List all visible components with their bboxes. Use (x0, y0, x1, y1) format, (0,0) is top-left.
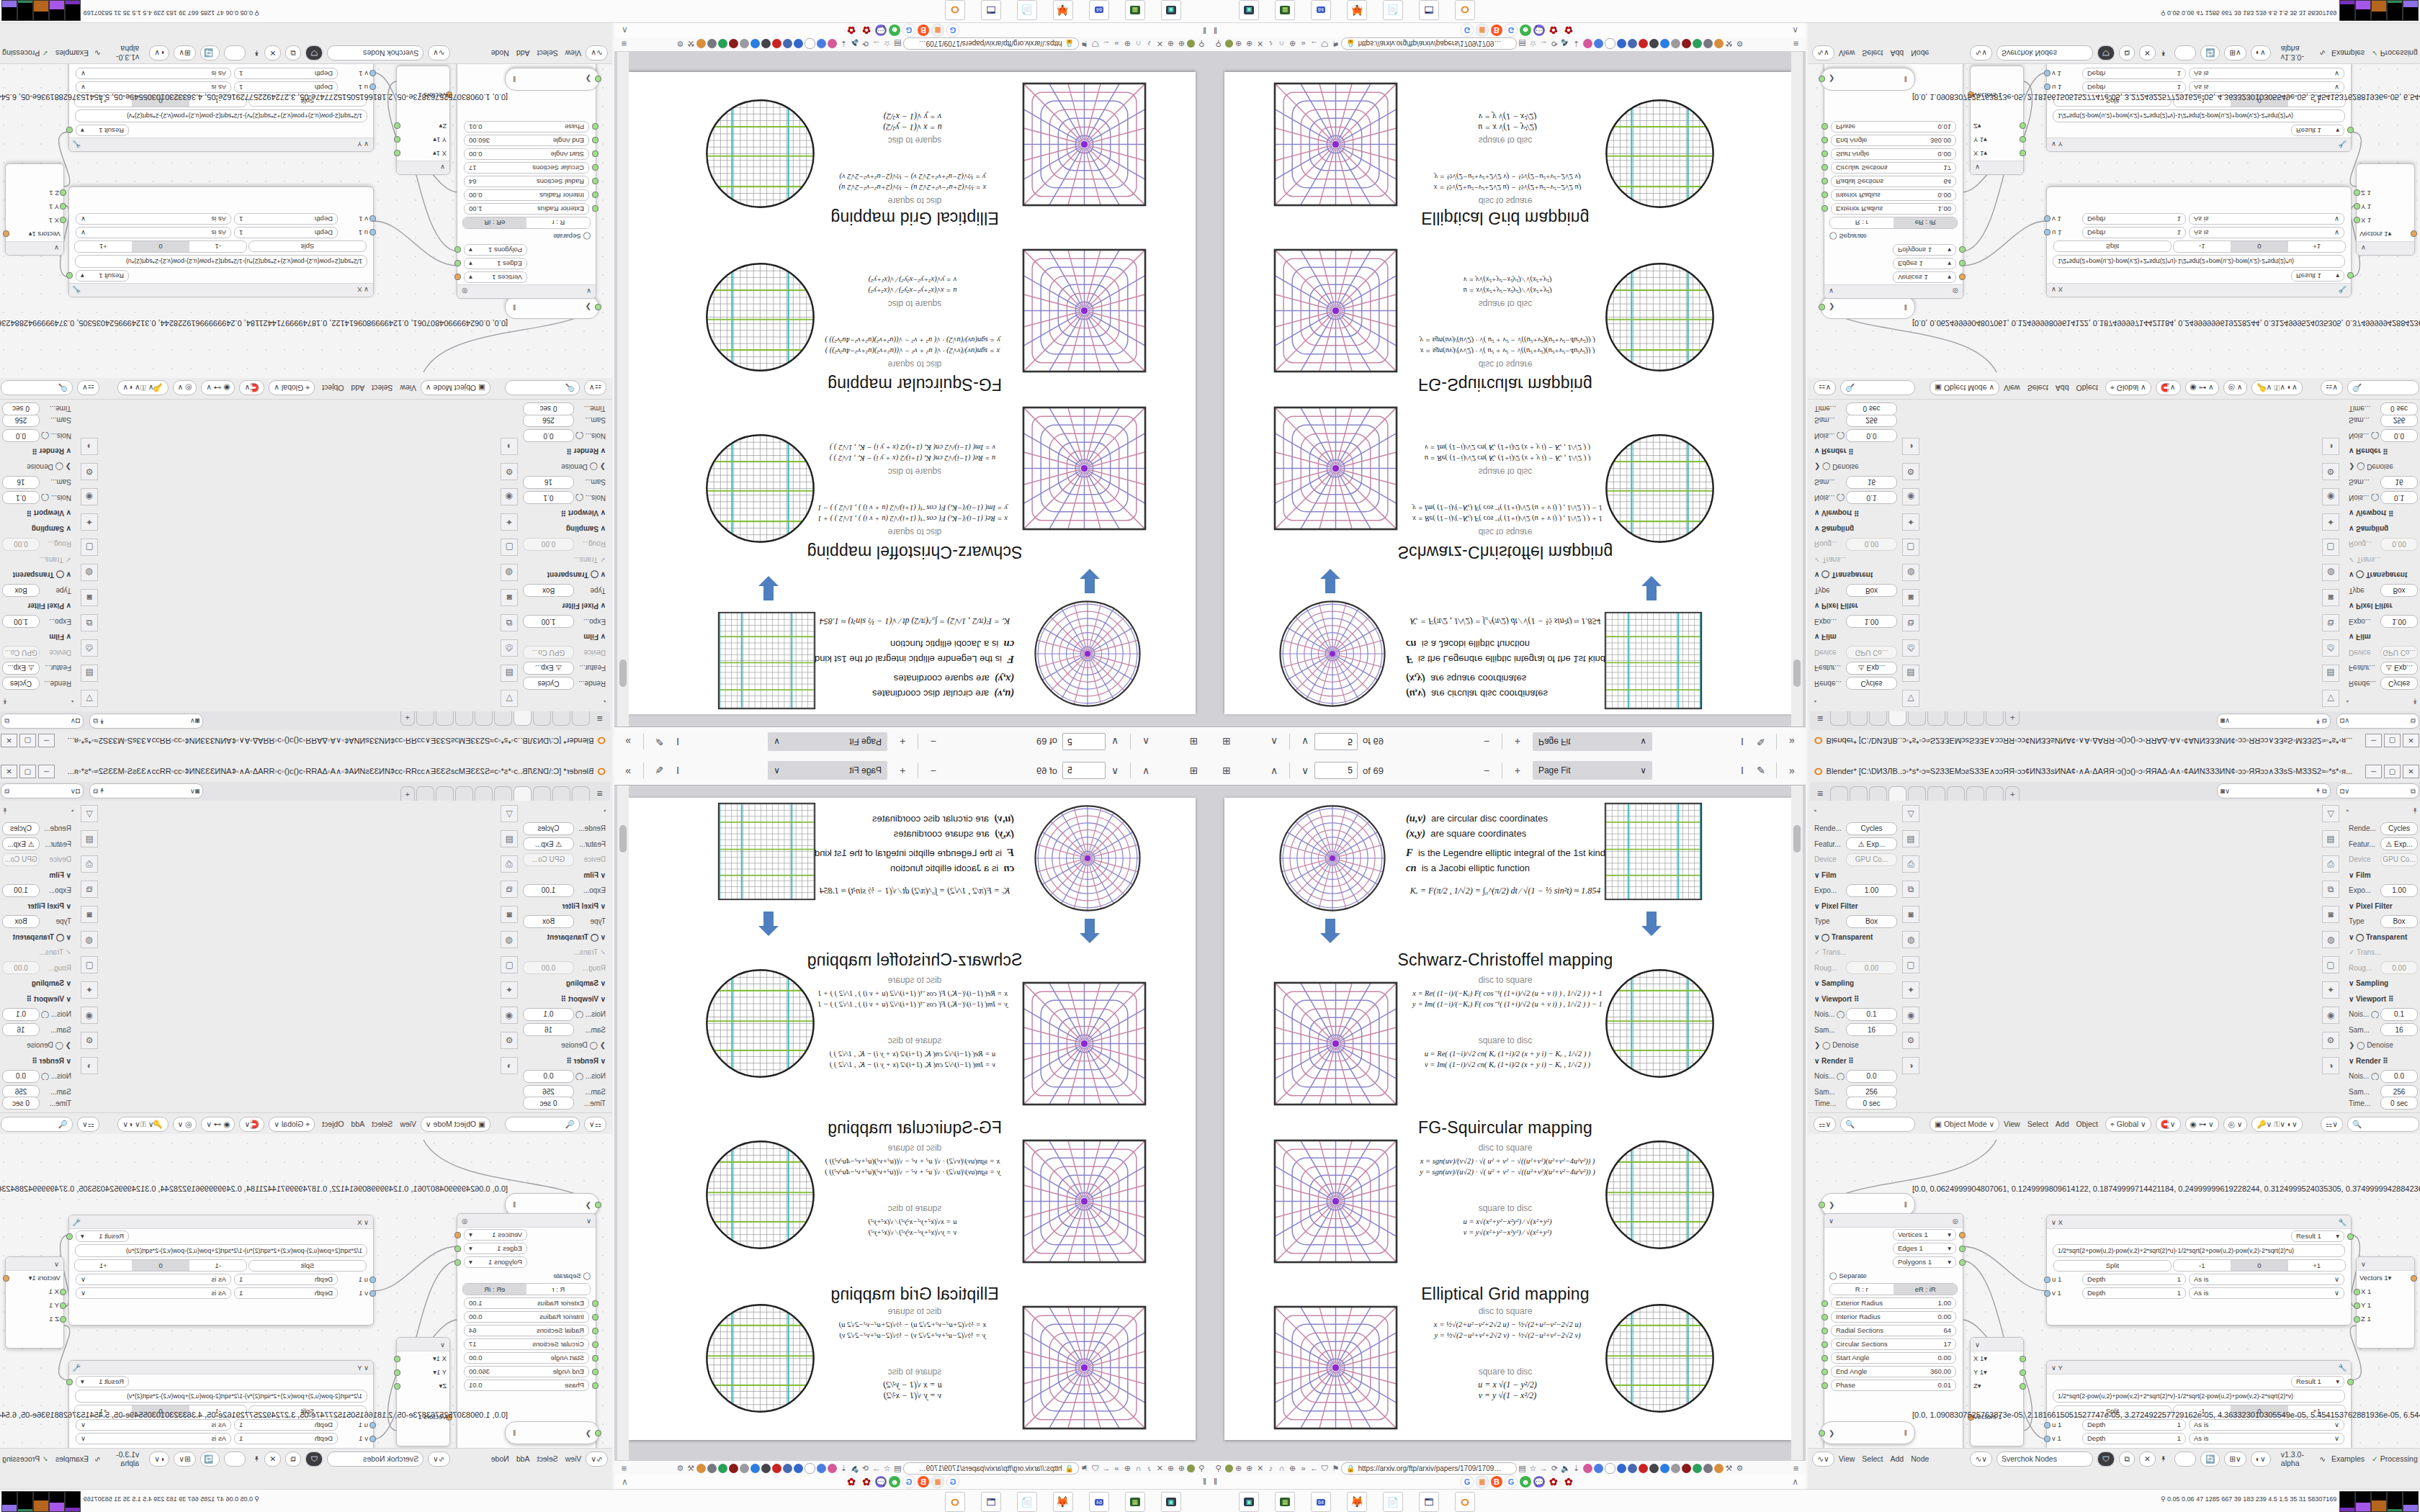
globe-icon[interactable]: ⊕ (1122, 40, 1133, 49)
stethoscope-node[interactable]: ❯‖ (505, 68, 599, 91)
socket[interactable] (2020, 1369, 2026, 1376)
forward-icon[interactable]: → (871, 40, 882, 48)
tree-type-icon[interactable]: ∿∨ (428, 46, 449, 61)
filter-funnel-icon[interactable]: ▽ (2322, 805, 2339, 822)
modifier-tab-icon[interactable]: ✦ (2322, 981, 2339, 999)
extension-icon[interactable] (1594, 40, 1603, 49)
section-header[interactable]: ∨ ◯ Transparent (2344, 930, 2420, 945)
app-menu-icon[interactable]: ≡ (1791, 39, 1801, 50)
circle-generator-node[interactable]: ∨◎ Vertices 1▾ Edges 1▾ Polygons 1▾ ◯ Se… (457, 54, 596, 299)
modifier-tab-icon[interactable]: ✦ (81, 981, 98, 999)
previous-page-icon[interactable]: ∧ (1265, 761, 1283, 780)
workspace-tab[interactable] (533, 711, 551, 726)
formula-input[interactable]: 1/2*sqrt(2-pow(u,2)+pow(v,2)+2*sqrt(2)*v… (2053, 109, 2345, 122)
field-circular-sections[interactable]: Circular Sections17 (1831, 1338, 1956, 1350)
input-socket[interactable] (592, 1314, 599, 1320)
menu-object[interactable]: Object (322, 384, 344, 392)
socket[interactable] (2020, 136, 2026, 143)
extension-icon[interactable] (772, 1464, 781, 1473)
node-tree-name[interactable]: Sverchok Nodes (327, 1452, 423, 1467)
collapse-icon[interactable]: ∨ (1829, 1217, 1834, 1225)
property-row[interactable]: Time...0 sec (2344, 401, 2420, 417)
output-tab-icon[interactable]: ⎙ (81, 639, 98, 657)
section-header[interactable]: ∨ Pixel Filter (1810, 899, 1901, 914)
section-header[interactable]: ∨ Pixel Filter (0, 899, 76, 914)
subsection-header[interactable]: ∨ Render ⠿ (519, 1053, 610, 1069)
output-socket[interactable] (1959, 1232, 1966, 1238)
overlays-toggle[interactable]: ◎ ∨ (2223, 1117, 2248, 1132)
editor-type-button[interactable]: ⚏∨ (1814, 1117, 1836, 1132)
previous-page-icon[interactable]: ∧ (1265, 732, 1283, 751)
depth-field[interactable]: Depth1 (234, 1419, 338, 1431)
workspace-tab[interactable] (552, 786, 570, 801)
circle-generator-node[interactable]: ∨◎ Vertices 1▾ Edges 1▾ Polygons 1▾ ◯ Se… (1824, 54, 1963, 299)
menu-object[interactable]: Object (2076, 384, 2098, 392)
workspace-tab[interactable] (436, 711, 454, 726)
workspace-tab[interactable] (572, 711, 590, 726)
taskbar-app-window[interactable]: 🗔 (1419, 0, 1439, 20)
scrollbar-thumb[interactable] (1793, 825, 1801, 852)
draw-tool-icon[interactable]: ✎ (650, 732, 668, 751)
modifier-tab-icon[interactable]: ✦ (501, 981, 518, 999)
property-row[interactable]: Roug...0.00 (0, 536, 76, 552)
stethoscope-node[interactable]: ❯‖ (505, 1421, 599, 1444)
world-tab-icon[interactable]: ◍ (1902, 564, 1919, 581)
extension-icon[interactable] (740, 40, 749, 49)
input-socket[interactable] (369, 70, 376, 76)
taskbar-app-notepad[interactable]: 📄 (1017, 1492, 1037, 1512)
extension-icon[interactable] (1703, 40, 1713, 49)
taskbar-app-blender[interactable]: ⵔ (1455, 1492, 1475, 1512)
output-vertices[interactable]: Vertices 1▾ (1893, 272, 1956, 284)
property-row[interactable]: ❯ ◯ Denoise (519, 459, 610, 475)
input-socket[interactable] (369, 229, 376, 235)
physics-tab-icon[interactable]: ◉ (81, 488, 98, 505)
zoom-select[interactable]: Page Fit∨ (768, 761, 887, 780)
search-input-right[interactable]: 🔍 (2347, 1117, 2419, 1132)
wrap-segment[interactable]: -10+1 (74, 1259, 247, 1272)
overflow-icon[interactable]: » (1298, 1464, 1309, 1472)
render-tab-icon[interactable]: ▤ (2322, 830, 2339, 847)
output-socket[interactable] (454, 274, 461, 280)
menu-select[interactable]: Select (372, 1120, 393, 1128)
workspace-tab[interactable] (1966, 786, 1984, 801)
refresh-icon[interactable]: 🔄 (200, 1452, 220, 1467)
pdf-scrollbar[interactable] (1791, 786, 1803, 1489)
globe-icon[interactable]: ⊕ (1176, 40, 1187, 49)
section-header[interactable]: ∨ Film (2344, 629, 2420, 645)
extension-icon[interactable] (750, 1464, 760, 1473)
collapse-icon[interactable]: ∨ (440, 164, 445, 172)
property-row[interactable]: Featur...⚠ Exp... (519, 837, 610, 852)
section-header[interactable]: ∨ ◯ Transparent (2344, 567, 2420, 583)
section-header[interactable]: ∨ ◯ Transparent (0, 930, 76, 945)
output-edges[interactable]: Edges 1▾ (464, 1243, 527, 1254)
output-socket[interactable] (66, 1379, 73, 1385)
input-socket[interactable] (592, 1355, 599, 1362)
pin-icon[interactable]: 🖈 (1, 806, 9, 815)
settings-gear-icon[interactable]: ⚙ (675, 1464, 686, 1473)
bookmark-flower-icon[interactable]: ✿ (1547, 1475, 1560, 1488)
socket[interactable] (394, 1383, 400, 1390)
blender-titlebar[interactable]: ⵔ Blender* [C:\DИЗЛВ..ɔ◦*ѕ*◦ɔ≈S2ЗЗEМɔƨЅЗ… (1810, 760, 2420, 782)
sidebar-toggle-icon[interactable]: ⊞ (1217, 732, 1236, 751)
extension-icon[interactable] (783, 1464, 792, 1473)
collapse-icon[interactable]: ∨ (2361, 1260, 2366, 1268)
field-phase[interactable]: Phase0.01 (464, 1380, 589, 1391)
input-socket[interactable] (2044, 70, 2051, 76)
section-header[interactable]: ∨ Sampling (519, 521, 610, 537)
output-socket[interactable] (66, 1233, 73, 1240)
tree-type-icon[interactable]: ∿∨ (1970, 1452, 1991, 1467)
node-tree-name[interactable]: Sverchok Nodes (1996, 1452, 2093, 1467)
minimize-button[interactable]: ─ (2365, 734, 2382, 748)
collapse-icon[interactable]: ∨ (2051, 287, 2058, 294)
object-tab-icon[interactable]: ▢ (81, 956, 98, 973)
stethoscope-node[interactable]: ❯‖ (1821, 1421, 1915, 1444)
output-vertices[interactable]: Vertices 1▾ (464, 272, 527, 284)
mode-select[interactable]: As is∨ (2189, 82, 2344, 94)
collapse-icon[interactable]: ∨ (1975, 1341, 1980, 1349)
bookmark-google-icon[interactable]: G (946, 1475, 959, 1488)
page-number-input[interactable] (1314, 733, 1358, 750)
socket[interactable] (60, 203, 66, 210)
close-button[interactable]: ✕ (2403, 734, 2419, 748)
editor-type-button[interactable]: ∿∨ (586, 1452, 607, 1467)
extension-icon[interactable] (707, 40, 717, 49)
extension-icon[interactable] (729, 1464, 738, 1473)
subsection-header[interactable]: ∨ Render ⠿ (2344, 1053, 2420, 1069)
node-tree-name[interactable]: Sverchok Nodes (1996, 46, 2093, 61)
collapse-icon[interactable]: ∨ (362, 1364, 369, 1372)
editor-type-button[interactable]: ∿∨ (1812, 1452, 1834, 1467)
globe-icon[interactable]: ⊕ (1244, 40, 1255, 49)
constraints-tab-icon[interactable]: ⚙ (501, 1032, 518, 1049)
output-socket[interactable] (454, 1232, 461, 1238)
sidebar-toggle-icon[interactable]: ⊞ (1217, 761, 1236, 780)
field-start-angle[interactable]: Start Angle0.00 (464, 1352, 589, 1364)
sidebar-toggle-icon[interactable]: ⊞ (1184, 732, 1203, 751)
next-page-icon[interactable]: ∨ (1296, 761, 1314, 780)
collapse-caret-icon[interactable]: ∧ (1792, 25, 1798, 35)
field-phase[interactable]: Phase0.01 (1831, 1380, 1956, 1391)
maximize-button[interactable]: ▢ (19, 734, 36, 748)
field-interior-radius[interactable]: Interior Radius0.00 (1831, 190, 1956, 202)
url-bar[interactable]: 🔒 https://arxiv.org/ftp/arxiv/papers/170… (903, 38, 1079, 50)
socket[interactable] (394, 150, 400, 156)
examples-menu[interactable]: Examples (2331, 1454, 2365, 1463)
property-row[interactable]: Nois... ◯0.1 (2344, 490, 2420, 506)
minimize-button[interactable]: ─ (38, 734, 55, 748)
forward-icon[interactable]: → (1538, 40, 1549, 48)
result-output[interactable]: Result 1▾ (2291, 1376, 2344, 1387)
view-layer-selector[interactable]: ◘∨ ⧉ (2336, 714, 2419, 729)
property-row[interactable]: Rende...Cycles (1810, 821, 1901, 837)
view-layer-tab-icon[interactable]: ⧉ (1902, 614, 1919, 631)
pin-icon[interactable]: 🖈 (2411, 697, 2419, 706)
pin-icon[interactable]: 🖈 (1, 697, 9, 706)
taskbar-app-firefox[interactable]: 🦊 (1053, 0, 1073, 20)
collapse-icon[interactable]: ∨ (362, 287, 369, 294)
property-row[interactable]: Sam...16 (0, 1022, 76, 1038)
input-socket[interactable] (592, 1382, 599, 1389)
workspace-tab[interactable] (1869, 786, 1887, 801)
depth-field[interactable]: Depth1 (2082, 214, 2186, 225)
data-tab-icon[interactable]: ◑ (1902, 438, 1919, 455)
formula-node-x[interactable]: ∨ X🔧 Result 1▾ 1/2*sqrt(2+pow(u,2)-pow(v… (68, 186, 374, 297)
radius-mode-toggle[interactable]: R : r eR : iR (462, 217, 591, 229)
zoom-in-icon[interactable]: + (893, 732, 912, 751)
forward-icon[interactable]: → (871, 1464, 882, 1472)
pause-icon[interactable]: ‖ (1214, 25, 1217, 35)
shading-toggles[interactable]: 🔑∨ ⚿∨ ◐∨ (117, 1117, 168, 1132)
scrollbar-thumb[interactable] (1793, 660, 1801, 687)
data-tab-icon[interactable]: ◑ (81, 438, 98, 455)
close-icon[interactable]: ✕ (264, 46, 281, 61)
pin-icon[interactable]: ⚲ (1213, 40, 1224, 49)
extension-icon[interactable] (729, 40, 738, 49)
scene-tab-icon[interactable]: ◙ (2322, 906, 2339, 923)
workspace-tab[interactable] (1947, 711, 1965, 726)
constraints-tab-icon[interactable]: ⚙ (2322, 1032, 2339, 1049)
property-row[interactable]: ❯ ◯ Denoise (2344, 1038, 2420, 1053)
property-row[interactable]: Nois... ◯0.0 (1810, 428, 1901, 444)
next-page-icon[interactable]: ∨ (1106, 761, 1124, 780)
field-radial-sections[interactable]: Radial Sections64 (464, 176, 589, 188)
taskbar-app-firefox[interactable]: 🦊 (1347, 0, 1367, 20)
collapse-caret-icon[interactable]: ∧ (1792, 1477, 1798, 1487)
pdf-content-area[interactable]: (u,v) are circular disc coordinates (x,y… (629, 23, 1210, 726)
menu-view[interactable]: View (400, 1120, 416, 1128)
scene-tab-icon[interactable]: ◙ (2322, 589, 2339, 606)
input-socket[interactable] (1819, 1202, 1825, 1208)
result-output[interactable]: Result 1▾ (76, 271, 129, 282)
field-circular-sections[interactable]: Circular Sections17 (464, 1338, 589, 1350)
extension-icon[interactable] (1682, 40, 1691, 49)
scene-tab-icon[interactable]: ◙ (81, 589, 98, 606)
constraints-tab-icon[interactable]: ⚙ (501, 463, 518, 480)
object-tab-icon[interactable]: ▢ (2322, 539, 2339, 556)
url-bar[interactable]: 🔒 https://arxiv.org/ftp/arxiv/papers/170… (903, 1462, 1079, 1475)
socket[interactable] (60, 1289, 66, 1295)
socket[interactable] (2020, 122, 2026, 129)
input-socket[interactable] (592, 192, 599, 198)
transform-orientation-selector[interactable]: ⌖ Global ∨ (269, 381, 315, 396)
bookmark-flower-icon[interactable]: ✿ (1547, 24, 1560, 37)
editor-type-button-right[interactable]: ⚏∨ (2321, 381, 2343, 396)
scene-selector[interactable]: ◙∨ 🖈⧉ (2217, 783, 2331, 798)
input-socket[interactable] (2044, 84, 2051, 90)
extension-icon[interactable] (1649, 1464, 1659, 1473)
bookmark-google-icon[interactable]: G (1461, 1475, 1474, 1488)
wrap-segment[interactable]: -10+1 (74, 240, 247, 253)
shield-icon[interactable]: 🛡 (1319, 40, 1330, 48)
input-socket[interactable] (2044, 1290, 2051, 1297)
input-socket[interactable] (1819, 76, 1825, 82)
extension-icon[interactable] (1660, 40, 1670, 49)
mode-selector[interactable]: ▣ Object Mode ∨ (1930, 381, 1999, 396)
output-socket[interactable] (66, 127, 73, 133)
property-row[interactable]: Rende...Cycles (2344, 821, 2420, 837)
socket[interactable] (394, 1369, 400, 1376)
settings-gear-icon[interactable]: ⚙ (1734, 1464, 1745, 1473)
workspace-tab-active[interactable] (514, 711, 532, 726)
overlays-toggle[interactable]: ◎ ∨ (173, 381, 197, 396)
filter-funnel-icon[interactable]: ▽ (501, 690, 518, 707)
socket[interactable] (2354, 189, 2360, 196)
refresh-icon[interactable]: 🔄 (2200, 1452, 2220, 1467)
text-selection-tool-icon[interactable]: I (668, 761, 687, 780)
subsection-header[interactable]: ∨ Viewport ⠿ (519, 505, 610, 521)
menu-node[interactable]: Node (491, 49, 509, 58)
property-row[interactable]: Expo...1.00 (0, 883, 76, 899)
copy-icon[interactable]: ⧉ (285, 1452, 301, 1467)
output-socket[interactable] (1959, 274, 1966, 280)
mode-select[interactable]: As is∨ (2189, 1433, 2344, 1444)
shield-icon[interactable]: 🛡 (1090, 1464, 1101, 1472)
scene-selector[interactable]: ◙∨ 🖈⧉ (2217, 714, 2331, 729)
mode-select[interactable]: As is∨ (2189, 68, 2344, 80)
stethoscope-node[interactable]: ❯‖ (505, 296, 599, 319)
property-row[interactable]: Expo...1.00 (1810, 883, 1901, 899)
globe-icon[interactable]: ⊕ (1244, 1464, 1255, 1473)
depth-field[interactable]: Depth1 (234, 68, 338, 80)
overlays-toggle[interactable]: ◎ ∨ (2223, 381, 2248, 396)
property-row[interactable]: ❯ ◯ Denoise (0, 459, 76, 475)
tools-icon[interactable]: ⚒ (1724, 1464, 1734, 1473)
world-tab-icon[interactable]: ◍ (2322, 931, 2339, 948)
maximize-button[interactable]: ▢ (19, 765, 36, 778)
formula-input[interactable]: 1/2*sqrt(2-pow(u,2)+pow(v,2)+2*sqrt(2)*v… (75, 1390, 367, 1403)
settings-gear-icon[interactable]: ⚙ (675, 40, 686, 49)
modifier-tab-icon[interactable]: ✦ (2322, 513, 2339, 531)
menu-view[interactable]: View (565, 1454, 582, 1463)
separate-checkbox[interactable]: ◯ Separate (1829, 1272, 1867, 1279)
collapse-icon[interactable]: ∨ (2361, 245, 2366, 253)
depth-field[interactable]: Depth1 (2082, 1433, 2186, 1444)
collapse-icon[interactable]: ∨ (2051, 1364, 2058, 1372)
property-row[interactable]: DeviceGPU Co... (1810, 645, 1901, 661)
examples-menu[interactable]: Examples (55, 1454, 89, 1463)
reload-icon[interactable]: ⟳ (1549, 1464, 1560, 1473)
view-layer-tab-icon[interactable]: ⧉ (2322, 881, 2339, 898)
add-workspace-tab[interactable]: + (400, 711, 415, 726)
property-row[interactable]: Sam...16 (2344, 1022, 2420, 1038)
scene-selector[interactable]: ◙∨ 🖈⧉ (89, 783, 203, 798)
section-header[interactable]: ∨ Film (1810, 868, 1901, 883)
input-socket[interactable] (595, 1202, 601, 1208)
editor-type-button-right[interactable]: ⚏∨ (2321, 1117, 2343, 1132)
property-row[interactable]: TypeBox (1810, 914, 1901, 930)
globe-icon[interactable]: ⊕ (1165, 1464, 1176, 1473)
property-row[interactable]: DeviceGPU Co... (519, 645, 610, 661)
formula-input[interactable]: 1/2*sqrt(2+pow(u,2)-pow(v,2)+2*sqrt(2)*u… (2053, 255, 2345, 268)
field-start-angle[interactable]: Start Angle0.00 (464, 149, 589, 161)
output-socket[interactable] (2347, 127, 2354, 133)
property-row[interactable]: Rende...Cycles (519, 821, 610, 837)
output-socket[interactable] (2347, 272, 2354, 279)
zoom-select[interactable]: Page Fit∨ (1533, 761, 1652, 780)
result-output[interactable]: Result 1▾ (2291, 1230, 2344, 1242)
separate-checkbox[interactable]: ◯ Separate (553, 233, 591, 240)
download-icon[interactable]: ⇣ (838, 40, 849, 49)
add-workspace-tab[interactable]: + (2005, 711, 2020, 726)
property-row[interactable]: DeviceGPU Co... (0, 852, 76, 868)
extension-icon[interactable] (1628, 40, 1637, 49)
bookmark-flag-icon[interactable]: ⚑ (1330, 1464, 1341, 1473)
view-layer-tab-icon[interactable]: ⧉ (1902, 881, 1919, 898)
input-socket[interactable] (592, 178, 599, 184)
property-row[interactable]: TypeBox (519, 583, 610, 599)
reader-mode-icon[interactable]: ▤ (892, 1464, 903, 1473)
reload-icon[interactable]: ⟳ (1549, 40, 1560, 49)
output-socket[interactable] (2347, 1379, 2354, 1385)
bookmark-stackoverflow-icon[interactable]: ≣ (931, 1475, 944, 1488)
socket[interactable] (60, 1302, 66, 1309)
mode-select[interactable]: As is∨ (76, 82, 231, 94)
menu-select[interactable]: Select (1862, 1454, 1883, 1463)
workspace-tab[interactable] (1927, 786, 1945, 801)
workspace-tab-active[interactable] (514, 786, 532, 801)
workspace-tab[interactable] (1908, 711, 1926, 726)
mode-selector[interactable]: ▣ Object Mode ∨ (421, 381, 490, 396)
field-exterior-radius[interactable]: Exterior Radius1.00 (1831, 204, 1956, 215)
modifier-tab-icon[interactable]: ✦ (81, 513, 98, 531)
back-icon[interactable]: ← (1309, 40, 1319, 48)
property-row[interactable]: Nois... ◯0.1 (1810, 490, 1901, 506)
snap-toggle[interactable]: 🧲∨ (2156, 1117, 2181, 1132)
close-button[interactable]: ✕ (2403, 765, 2419, 778)
filter-funnel-icon[interactable]: ▽ (1902, 805, 1919, 822)
extension-icon[interactable] (707, 1464, 717, 1473)
depth-field[interactable]: Depth1 (234, 214, 338, 225)
add-workspace-tab[interactable]: + (2005, 786, 2020, 801)
workspace-tab[interactable] (436, 786, 454, 801)
minimize-button[interactable]: ─ (38, 765, 55, 778)
render-tab-icon[interactable]: ▤ (1902, 665, 1919, 682)
close-tabs-icon[interactable]: ✕ (1155, 40, 1165, 49)
modifier-tab-icon[interactable]: ✦ (1902, 981, 1919, 999)
bookmark-flower-icon[interactable]: ✿ (860, 1475, 873, 1488)
property-row[interactable]: TypeBox (1810, 583, 1901, 599)
bookmark-google-icon[interactable]: G (1505, 1475, 1518, 1488)
extension-icon[interactable] (1628, 1464, 1637, 1473)
extension-icon[interactable] (1671, 40, 1680, 49)
input-socket[interactable] (369, 1290, 376, 1297)
blank-toggle[interactable] (2174, 1452, 2196, 1467)
editor-type-button-right[interactable]: ⚏∨ (77, 381, 99, 396)
app-menu-icon[interactable]: ≡ (597, 713, 603, 724)
field-exterior-radius[interactable]: Exterior Radius1.00 (464, 204, 589, 215)
section-header[interactable]: ∨ Pixel Filter (2344, 899, 2420, 914)
menu-view[interactable]: View (2004, 1120, 2020, 1128)
extension-icon[interactable] (750, 40, 760, 49)
socket[interactable] (394, 1356, 400, 1362)
workspace-tab[interactable] (1850, 711, 1868, 726)
property-row[interactable]: Featur...⚠ Exp... (0, 837, 76, 852)
property-row[interactable]: Time...0 sec (1810, 1096, 1901, 1112)
bookmark-flag-icon[interactable]: ⚑ (1079, 1464, 1090, 1473)
property-row[interactable]: Nois... ◯0.0 (2344, 1068, 2420, 1084)
data-tab-icon[interactable]: ◑ (501, 438, 518, 455)
section-header[interactable]: ∨ Sampling (1810, 976, 1901, 991)
property-row[interactable]: Sam...16 (1810, 474, 1901, 490)
section-header[interactable]: ∨ Pixel Filter (0, 598, 76, 614)
draw-tool-icon[interactable]: ✎ (650, 761, 668, 780)
zoom-select[interactable]: Page Fit∨ (768, 732, 887, 751)
stethoscope-node[interactable]: ❯‖ (1821, 68, 1915, 91)
property-row[interactable]: Nois... ◯0.0 (0, 1068, 76, 1084)
